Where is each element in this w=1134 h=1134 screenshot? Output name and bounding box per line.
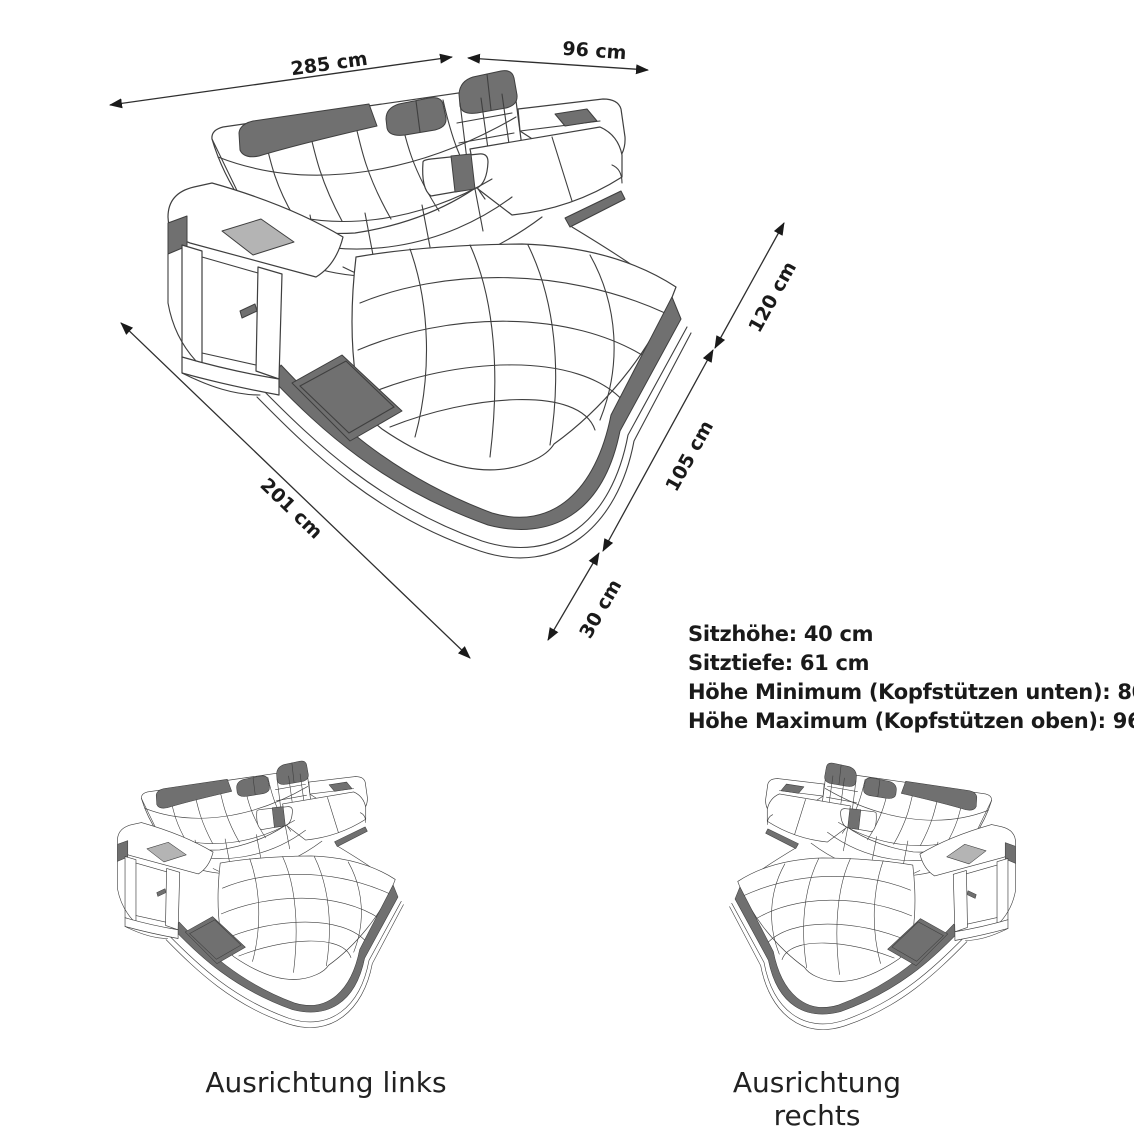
caption-orientation-left: Ausrichtung links — [196, 1066, 456, 1099]
caption-orientation-right: Ausrichtung rechts — [687, 1066, 947, 1132]
dimension-label-120: 120 cm — [744, 258, 801, 336]
dimension-label-96: 96 cm — [562, 38, 628, 64]
spec-line-seat-height: Sitzhöhe: 40 cm — [688, 620, 1118, 649]
dimension-right-depth: 96 cm — [468, 38, 648, 70]
sofa-variant-right-illustration — [730, 763, 1016, 1030]
sofa-dimension-diagram: 285 cm 96 cm 120 cm 105 cm 30 cm 201 cm — [0, 0, 1134, 1134]
sofa-variant-left-illustration — [117, 761, 403, 1028]
spec-text-block: Sitzhöhe: 40 cm Sitztiefe: 61 cm Höhe Mi… — [688, 620, 1118, 736]
dimension-label-285: 285 cm — [289, 48, 369, 81]
dimension-line-285 — [110, 57, 452, 105]
diagram-artwork: 285 cm 96 cm 120 cm 105 cm 30 cm 201 cm — [0, 0, 1134, 1134]
dimension-label-30: 30 cm — [575, 576, 626, 643]
dimension-side-upper: 120 cm — [715, 223, 801, 348]
spec-line-seat-depth: Sitztiefe: 61 cm — [688, 649, 1118, 678]
sofa-main-illustration — [168, 71, 691, 558]
dimension-base-height: 30 cm — [548, 553, 626, 642]
dimension-label-201: 201 cm — [256, 474, 327, 544]
spec-line-height-min: Höhe Minimum (Kopfstützen unten): 80 cm — [688, 678, 1118, 707]
dimension-back-width: 285 cm — [110, 48, 452, 105]
spec-line-height-max: Höhe Maximum (Kopfstützen oben): 96 cm — [688, 707, 1118, 736]
